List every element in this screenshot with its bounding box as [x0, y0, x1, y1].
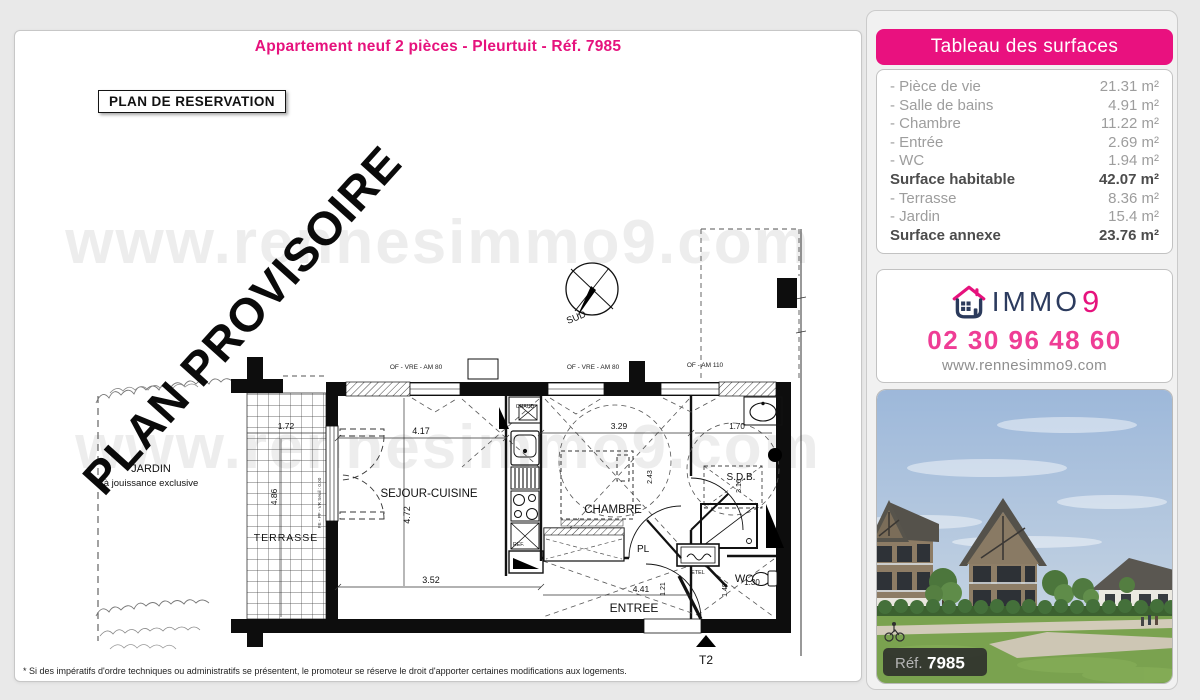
opening-annotations: OF - VRE - AM 80 OF - VRE - AM 80 OF - A… [390, 362, 724, 371]
surface-label: - Salle de bains [890, 97, 993, 116]
surface-label: Surface habitable [890, 171, 1015, 190]
surface-value: 23.76 m² [1099, 227, 1159, 246]
fridge-label: REF. [513, 542, 524, 548]
pl-label: PL [637, 544, 650, 555]
agency-phone[interactable]: 02 30 96 48 60 [877, 325, 1172, 356]
surface-value: 15.4 m² [1108, 208, 1159, 227]
surface-row-total-annexe: Surface annexe23.76 m² [890, 227, 1159, 246]
dim-sejour-bottom: 3.52 [422, 575, 440, 585]
surface-value: 4.91 m² [1108, 97, 1159, 116]
brand-digit: 9 [1082, 284, 1099, 320]
building-photo: Réf. 7985 [876, 389, 1173, 684]
agency-website[interactable]: www.rennesimmo9.com [877, 357, 1172, 374]
surfaces-header: Tableau des surfaces [876, 29, 1173, 65]
dim-entree-h: 1.21 [660, 582, 667, 596]
type-marker: T2 [699, 653, 713, 667]
agency-logo: IMMO9 [877, 283, 1172, 321]
surface-value: 42.07 m² [1099, 171, 1159, 190]
footnote: * Si des impératifs d'ordre techniques o… [23, 666, 627, 676]
dim-entree-w: 4.41 [633, 584, 650, 594]
surface-row: - Jardin15.4 m² [890, 208, 1159, 227]
dim-wc-h: 1.49 [722, 583, 729, 597]
dim-sdb-w: 1.70 [729, 422, 745, 431]
compass-south-label: SUD [565, 309, 588, 327]
brand-name: IMMO [992, 286, 1080, 318]
wall-stub [629, 361, 645, 382]
surface-value: 21.31 m² [1100, 78, 1159, 97]
entry-arrow [696, 635, 716, 647]
watermark-line-2: www.rennesimmo9.com [74, 413, 820, 482]
dim-chambre-h: 2.43 [647, 470, 654, 484]
chambre-label: CHAMBRE [584, 504, 642, 516]
wc-label: WC [735, 573, 753, 585]
surface-row: - Chambre11.22 m² [890, 115, 1159, 134]
surface-label: - Entrée [890, 134, 943, 153]
surface-label: - Jardin [890, 208, 940, 227]
surface-row: - Salle de bains4.91 m² [890, 97, 1159, 116]
floor-plan: www.rennesimmo9.com www.rennesimmo9.com … [15, 31, 861, 681]
building-render: Réf. 7985 [877, 390, 1173, 684]
agency-card: IMMO9 02 30 96 48 60 www.rennesimmo9.com [876, 269, 1173, 383]
immo9-house-icon [950, 283, 988, 321]
opening-label-1: OF - VRE - AM 80 [390, 364, 443, 371]
dim-chambre-w: 3.29 [611, 421, 628, 431]
terrasse-label: TERRASSE [254, 532, 319, 544]
surface-label: - Chambre [890, 115, 961, 134]
dim-sejour-h: 4.72 [402, 506, 412, 524]
plan-panel: Appartement neuf 2 pièces - Pleurtuit - … [14, 30, 862, 682]
surface-row: - Pièce de vie21.31 m² [890, 78, 1159, 97]
surface-value: 2.69 m² [1108, 134, 1159, 153]
surface-label: - Pièce de vie [890, 78, 981, 97]
window-protrusion [468, 359, 498, 379]
sidebar: Tableau des surfaces - Pièce de vie21.31… [866, 10, 1178, 690]
surface-value: 11.22 m² [1101, 115, 1159, 134]
ref-label: Réf. [895, 655, 923, 672]
ref-number: 7985 [927, 654, 965, 673]
surfaces-table: - Pièce de vie21.31 m² - Salle de bains4… [876, 69, 1173, 254]
surface-row: - Entrée2.69 m² [890, 134, 1159, 153]
surface-value: 8.36 m² [1108, 190, 1159, 209]
boundary-pier [777, 278, 797, 308]
etel-label: ETEL [691, 570, 704, 576]
page: { "page": { "title": "Appartement neuf 2… [0, 0, 1200, 700]
chaud-label: CHAUD [516, 404, 535, 410]
opening-label-2: OF - VRE - AM 80 [567, 364, 620, 371]
terrace [231, 357, 326, 619]
site-watermark: www.rennesimmo9.com www.rennesimmo9.com [64, 208, 820, 482]
dim-terrasse-h: 4.86 [269, 488, 279, 505]
watermark-line-1: www.rennesimmo9.com [64, 208, 810, 277]
surface-row-total-habitable: Surface habitable42.07 m² [890, 171, 1159, 190]
ref-badge: Réf. 7985 [883, 648, 987, 676]
surface-row: - Terrasse8.36 m² [890, 190, 1159, 209]
entree-label: ENTREE [610, 601, 659, 615]
etel-box [677, 544, 719, 566]
dim-terrasse-w: 1.72 [278, 421, 295, 431]
dim-sejour-w: 4.17 [412, 426, 430, 436]
sdb-label: S.D.B. [727, 472, 756, 483]
closet [544, 528, 624, 561]
surface-label: - WC [890, 152, 924, 171]
surface-label: Surface annexe [890, 227, 1001, 246]
opening-label-3: OF - AM 110 [687, 362, 724, 369]
seuil-note: FE - PF - VR Seuil : 0.00 [317, 477, 322, 528]
sejour-label: SEJOUR-CUISINE [380, 488, 477, 500]
surface-label: - Terrasse [890, 190, 956, 209]
surface-row: - WC1.94 m² [890, 152, 1159, 171]
surface-value: 1.94 m² [1108, 152, 1159, 171]
chambre-lowwall [561, 520, 623, 526]
